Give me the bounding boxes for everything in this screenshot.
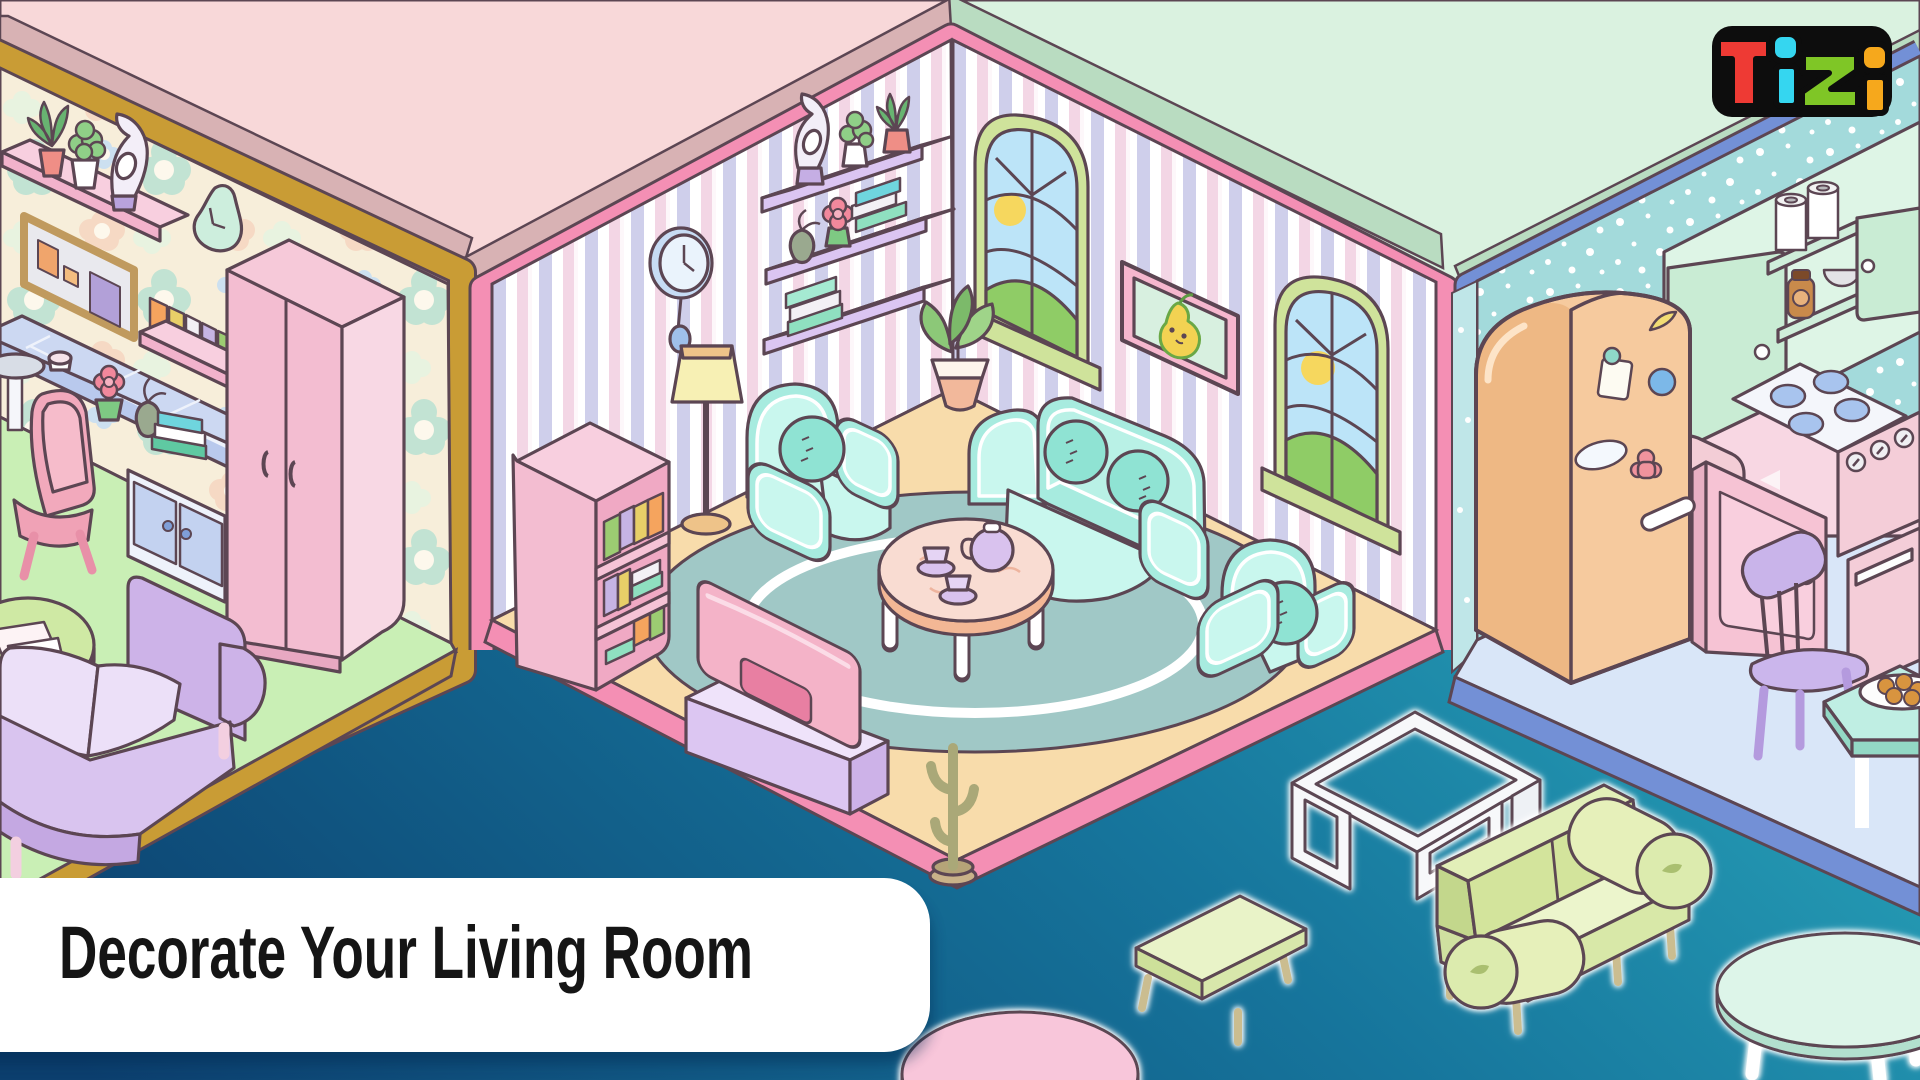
svg-text:Decorate Your Living Room: Decorate Your Living Room [59,911,753,994]
